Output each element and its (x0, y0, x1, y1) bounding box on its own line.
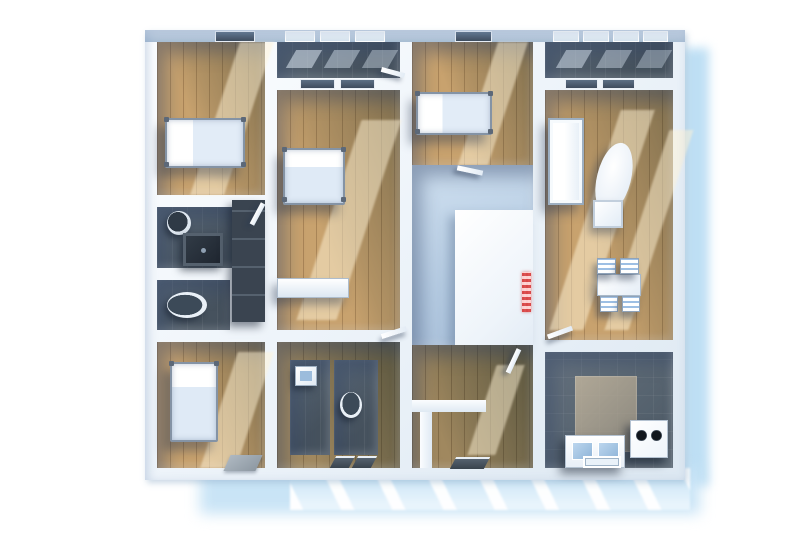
dining-table (597, 274, 641, 296)
window-icon (450, 457, 490, 469)
toilet-icon (167, 292, 207, 318)
tall-wardrobe (548, 118, 584, 205)
dining-chair (600, 296, 618, 312)
dining-chair (620, 258, 639, 274)
window-light (556, 50, 592, 68)
window-icon (643, 31, 668, 42)
building-shadow-right (683, 48, 709, 486)
shower-tray (183, 233, 223, 266)
window-icon (455, 31, 492, 42)
window-icon (583, 31, 609, 42)
built-in-closet (232, 200, 265, 322)
window-icon (553, 31, 579, 42)
window-icon (340, 79, 375, 89)
wall-stub (412, 400, 486, 412)
cooker (630, 420, 668, 458)
dining-chair (597, 258, 616, 274)
toilet-icon (340, 392, 362, 418)
window-light (636, 50, 672, 68)
window-light (286, 50, 322, 68)
window-icon (565, 79, 598, 89)
double-bed (283, 148, 345, 205)
washbasin-icon (167, 211, 191, 235)
window-icon (215, 31, 255, 42)
floorplan-render (0, 0, 800, 534)
window-icon (320, 31, 350, 42)
window-icon (602, 79, 635, 89)
window-icon (300, 79, 335, 89)
loggia-right (545, 42, 673, 78)
window-icon (355, 31, 385, 42)
doormat (223, 455, 262, 471)
window-light (324, 50, 360, 68)
window-light (596, 50, 632, 68)
window-icon (613, 31, 639, 42)
window-icon (583, 456, 621, 468)
single-bed (165, 118, 245, 168)
window-icon (285, 31, 315, 42)
dining-chair (622, 296, 640, 312)
single-bed (170, 362, 218, 442)
window-light (362, 50, 398, 68)
wall-stub (420, 412, 432, 468)
low-cabinet (277, 278, 349, 298)
washbasin-icon (295, 366, 317, 386)
balcony-strip-middle (277, 42, 400, 78)
building-shell (145, 30, 685, 480)
stool (593, 200, 623, 228)
red-checkered-decor (522, 272, 531, 312)
single-bed (416, 92, 492, 135)
